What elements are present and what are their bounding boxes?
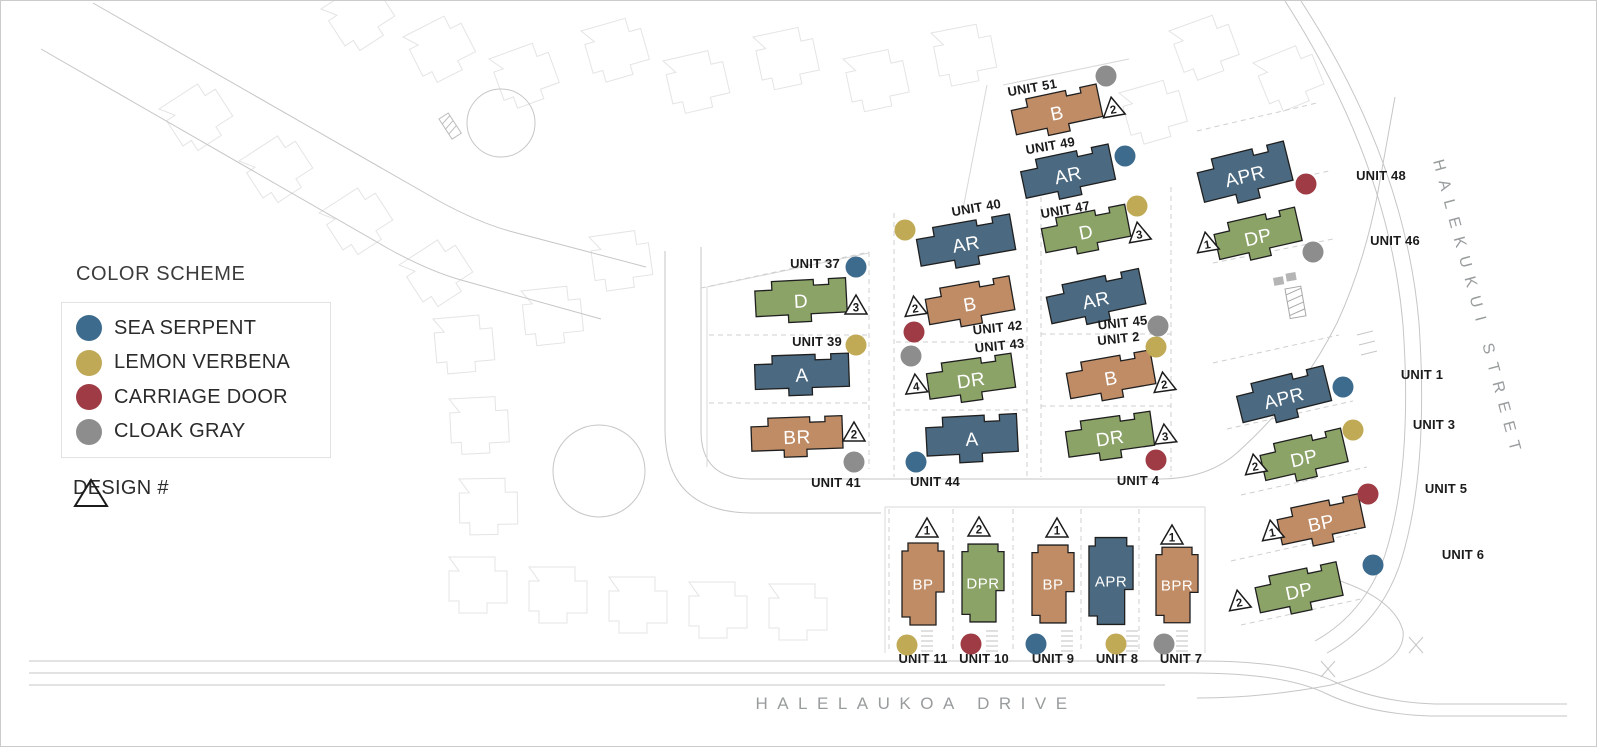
legend-item-label: SEA SERPENT	[114, 317, 256, 340]
unit-group-unit-39: AUNIT 39	[754, 334, 866, 397]
design-number-badge: 1	[916, 518, 938, 538]
floorplan-label: BPR	[1161, 577, 1193, 594]
unit-number-label: UNIT 40	[950, 196, 1002, 219]
unit-number-label: UNIT 4	[1117, 473, 1160, 488]
floorplan-label: DR	[1095, 427, 1126, 452]
legend-item-sea-serpent: SEA SERPENT	[76, 315, 330, 341]
unit-group-unit-40: ARUNIT 40	[895, 196, 1018, 274]
unit-number-label: UNIT 6	[1442, 547, 1484, 562]
design-number-value: 2	[976, 525, 982, 537]
design-number-value: 1	[1169, 533, 1176, 545]
design-number-badge: 2	[903, 295, 927, 317]
lemon-verbena-swatch	[76, 350, 102, 376]
floorplan-label: BP	[912, 576, 933, 593]
scheme-dot-red	[1358, 484, 1379, 505]
unit-number-label: UNIT 43	[974, 335, 1025, 355]
unit-group-unit-2: BUNIT 22	[1065, 329, 1176, 406]
unit-group-unit-4: DRUNIT 43	[1064, 411, 1177, 488]
unit-group-unit-44: AUNIT 44	[906, 414, 1019, 489]
unit-number-label: UNIT 37	[790, 256, 840, 271]
design-number-badge: 4	[904, 373, 928, 395]
floorplan-label: APR	[1095, 573, 1127, 590]
floorplan-label: DR	[956, 369, 987, 394]
scheme-dot-gray	[844, 452, 865, 473]
unit-number-label: UNIT 1	[1401, 367, 1443, 382]
legend-item-label: LEMON VERBENA	[114, 351, 290, 374]
unit-group-unit-11: BPUNIT 111	[897, 518, 948, 666]
scheme-dot-red	[1146, 450, 1167, 471]
design-number-value: 3	[1161, 431, 1169, 444]
floorplan-label: A	[965, 429, 979, 451]
sea-serpent-swatch	[76, 315, 102, 341]
design-number-badge: 2	[1226, 588, 1251, 611]
unit-group-unit-37: DUNIT 373	[754, 256, 867, 324]
unit-number-label: UNIT 48	[1356, 168, 1406, 183]
site-plan-canvas: BUNIT 512ARUNIT 49ARUNIT 40DUNIT 473BUNI…	[0, 0, 1597, 747]
scheme-dot-red	[1296, 174, 1317, 195]
scheme-dot-gray	[1148, 316, 1169, 337]
unit-group-unit-7: BPRUNIT 71	[1154, 525, 1203, 666]
color-scheme-legend: SEA SERPENT LEMON VERBENA CARRIAGE DOOR …	[61, 302, 331, 458]
floorplan-label: BP	[1042, 576, 1063, 593]
units-layer: BUNIT 512ARUNIT 49ARUNIT 40DUNIT 473BUNI…	[751, 66, 1484, 667]
scheme-dot-yellow	[1146, 337, 1167, 358]
cloak-gray-swatch	[76, 419, 102, 445]
carriage-door-swatch	[76, 384, 102, 410]
legend-item-label: CARRIAGE DOOR	[114, 386, 288, 409]
unit-number-label: UNIT 3	[1413, 417, 1455, 432]
unit-group-unit-46: DPUNIT 461	[1194, 207, 1420, 267]
unit-group-unit-42: BUNIT 422	[903, 276, 1024, 343]
unit-group-unit-8: APRUNIT 8	[1089, 538, 1138, 666]
legend-item-carriage-door: CARRIAGE DOOR	[76, 384, 330, 410]
scheme-dot-gray	[901, 346, 922, 367]
floorplan-label: DPR	[966, 575, 999, 592]
design-number-value: 2	[851, 430, 857, 442]
design-number-badge: 2	[968, 517, 990, 537]
design-number-legend: DESIGN #	[73, 477, 169, 500]
scheme-dot-yellow	[1343, 420, 1364, 441]
design-number-value: 1	[1054, 526, 1061, 538]
legend-item-cloak-gray: CLOAK GRAY	[76, 419, 330, 445]
scheme-dot-blue	[846, 257, 867, 278]
scheme-dot-blue	[1363, 555, 1384, 576]
triangle-icon	[73, 477, 109, 509]
scheme-dot-yellow	[846, 335, 867, 356]
unit-group-unit-3: DPUNIT 32	[1242, 417, 1455, 488]
unit-group-unit-6: DPUNIT 62	[1226, 547, 1484, 620]
scheme-dot-yellow	[1127, 196, 1148, 217]
unit-group-unit-48: APRUNIT 48	[1195, 141, 1406, 211]
design-number-value: 1	[924, 526, 931, 538]
floorplan-label: D	[793, 291, 808, 313]
floorplan-label: A	[795, 365, 809, 386]
scheme-dot-blue	[906, 452, 927, 473]
legend-title: COLOR SCHEME	[76, 263, 245, 286]
unit-group-unit-49: ARUNIT 49	[1019, 134, 1136, 206]
scheme-dot-gray	[1303, 242, 1324, 263]
unit-number-label: UNIT 44	[910, 474, 960, 489]
legend-item-label: CLOAK GRAY	[114, 420, 246, 443]
design-number-badge: 3	[1153, 423, 1177, 445]
unit-group-unit-45: ARUNIT 45	[1044, 269, 1168, 337]
unit-number-label: UNIT 39	[792, 334, 842, 349]
design-number-badge: 2	[1100, 95, 1125, 118]
design-number-value: 3	[853, 303, 859, 315]
scheme-dot-blue	[1026, 634, 1047, 655]
scheme-dot-yellow	[895, 220, 916, 241]
design-number-badge: 3	[845, 295, 867, 315]
scheme-dot-blue	[1115, 146, 1136, 167]
scheme-dot-gray	[1096, 66, 1117, 87]
scheme-dot-yellow	[897, 635, 918, 656]
unit-number-label: UNIT 5	[1425, 481, 1467, 496]
unit-group-unit-10: DPRUNIT 102	[959, 517, 1009, 666]
design-number-badge: 1	[1046, 518, 1068, 538]
unit-group-unit-51: BUNIT 512	[1006, 66, 1125, 142]
unit-number-label: UNIT 41	[811, 475, 861, 490]
street-name-bottom: HALELAUKOA DRIVE	[755, 694, 1076, 713]
scheme-dot-red	[904, 322, 925, 343]
scheme-dot-blue	[1333, 377, 1354, 398]
design-number-badge: 1	[1161, 525, 1183, 545]
scheme-dot-red	[961, 634, 982, 655]
floorplan-label: BR	[783, 427, 811, 449]
scheme-dot-yellow	[1106, 634, 1127, 655]
scheme-dot-gray	[1154, 634, 1175, 655]
design-number-badge: 2	[843, 422, 865, 442]
legend-item-lemon-verbena: LEMON VERBENA	[76, 350, 330, 376]
unit-number-label: UNIT 2	[1097, 329, 1141, 348]
unit-group-unit-9: BPUNIT 91	[1026, 518, 1075, 666]
unit-group-unit-5: BPUNIT 51	[1259, 481, 1467, 552]
unit-group-unit-43: DRUNIT 434	[901, 335, 1026, 406]
unit-group-unit-47: DUNIT 473	[1039, 196, 1151, 260]
unit-number-label: UNIT 46	[1370, 233, 1420, 248]
